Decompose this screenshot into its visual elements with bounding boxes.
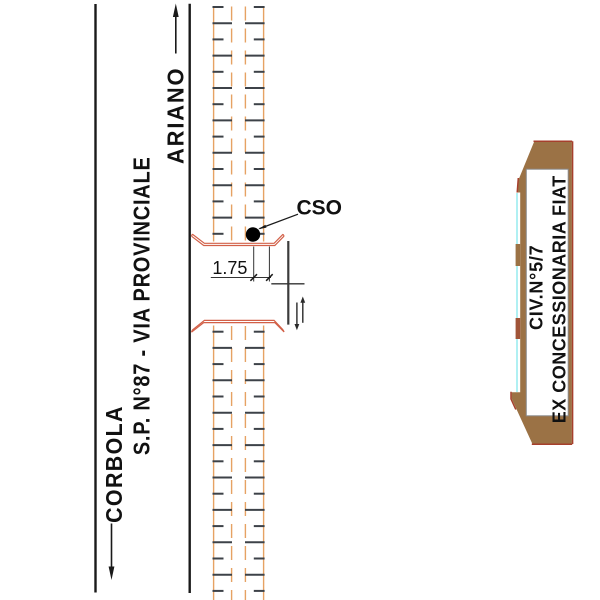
svg-text:S.P. N°87 - VIA PROVINCIALE: S.P. N°87 - VIA PROVINCIALE (128, 156, 155, 455)
svg-text:EX CONCESSIONARIA FIAT: EX CONCESSIONARIA FIAT (550, 175, 570, 423)
svg-text:1.75: 1.75 (212, 258, 247, 278)
svg-text:CIV.N°5/7: CIV.N°5/7 (527, 245, 547, 330)
svg-text:CSO: CSO (297, 196, 343, 219)
svg-text:CORBOLA: CORBOLA (101, 405, 127, 523)
svg-text:ARIANO: ARIANO (162, 67, 189, 164)
